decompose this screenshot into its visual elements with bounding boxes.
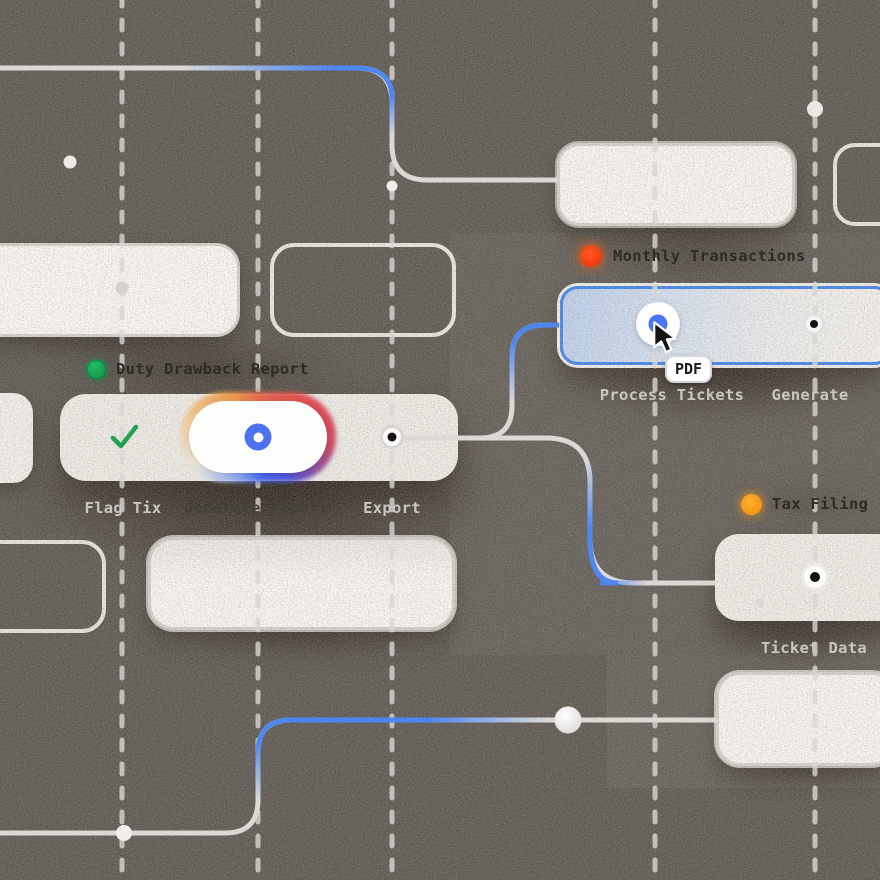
status-dot-icon: [86, 359, 107, 380]
node-blank-top[interactable]: [557, 143, 795, 226]
port-inner-dot: [253, 432, 263, 442]
port-label: Ticket Data: [761, 639, 867, 657]
node-outline-top-right[interactable]: [833, 143, 880, 226]
status-dot-icon: [741, 494, 762, 515]
node-blank-lower-mid[interactable]: [148, 537, 455, 630]
port-generate-report[interactable]: [245, 424, 272, 451]
toggle-switch[interactable]: [180, 392, 336, 482]
node-title: Duty Drawback Report: [116, 360, 309, 378]
workflow-canvas[interactable]: Duty Drawback Report Monthly Transaction…: [0, 0, 880, 880]
pdf-tooltip: PDF: [665, 355, 712, 383]
node-monthly-transactions[interactable]: [560, 286, 880, 365]
port-inner-dot: [810, 572, 820, 582]
node-outline-lower-left[interactable]: [0, 540, 106, 633]
check-icon: [109, 423, 139, 453]
port-ticket-data[interactable]: [801, 563, 829, 591]
node-title: Monthly Transactions: [613, 247, 806, 265]
port-label: Process Tickets: [600, 386, 744, 404]
port-inner-dot: [388, 433, 397, 442]
cursor-icon: [652, 321, 682, 355]
port-label: Generate Report: [184, 499, 328, 517]
status-dot-icon: [580, 245, 602, 267]
port-generate[interactable]: [803, 313, 825, 335]
node-tax-filing[interactable]: [715, 534, 880, 621]
node-blank-left[interactable]: [0, 243, 240, 337]
node-blank-bottom-right[interactable]: [716, 672, 880, 766]
port-label: Generate: [771, 386, 848, 404]
port-label: Export: [363, 499, 421, 517]
port-label: Flag Tix: [84, 499, 161, 517]
port-export[interactable]: [380, 425, 404, 449]
port-inner-dot: [810, 320, 818, 328]
node-title: Tax Filing: [772, 495, 868, 513]
node-edge-left[interactable]: [0, 393, 33, 483]
node-outline-upper[interactable]: [270, 243, 456, 337]
